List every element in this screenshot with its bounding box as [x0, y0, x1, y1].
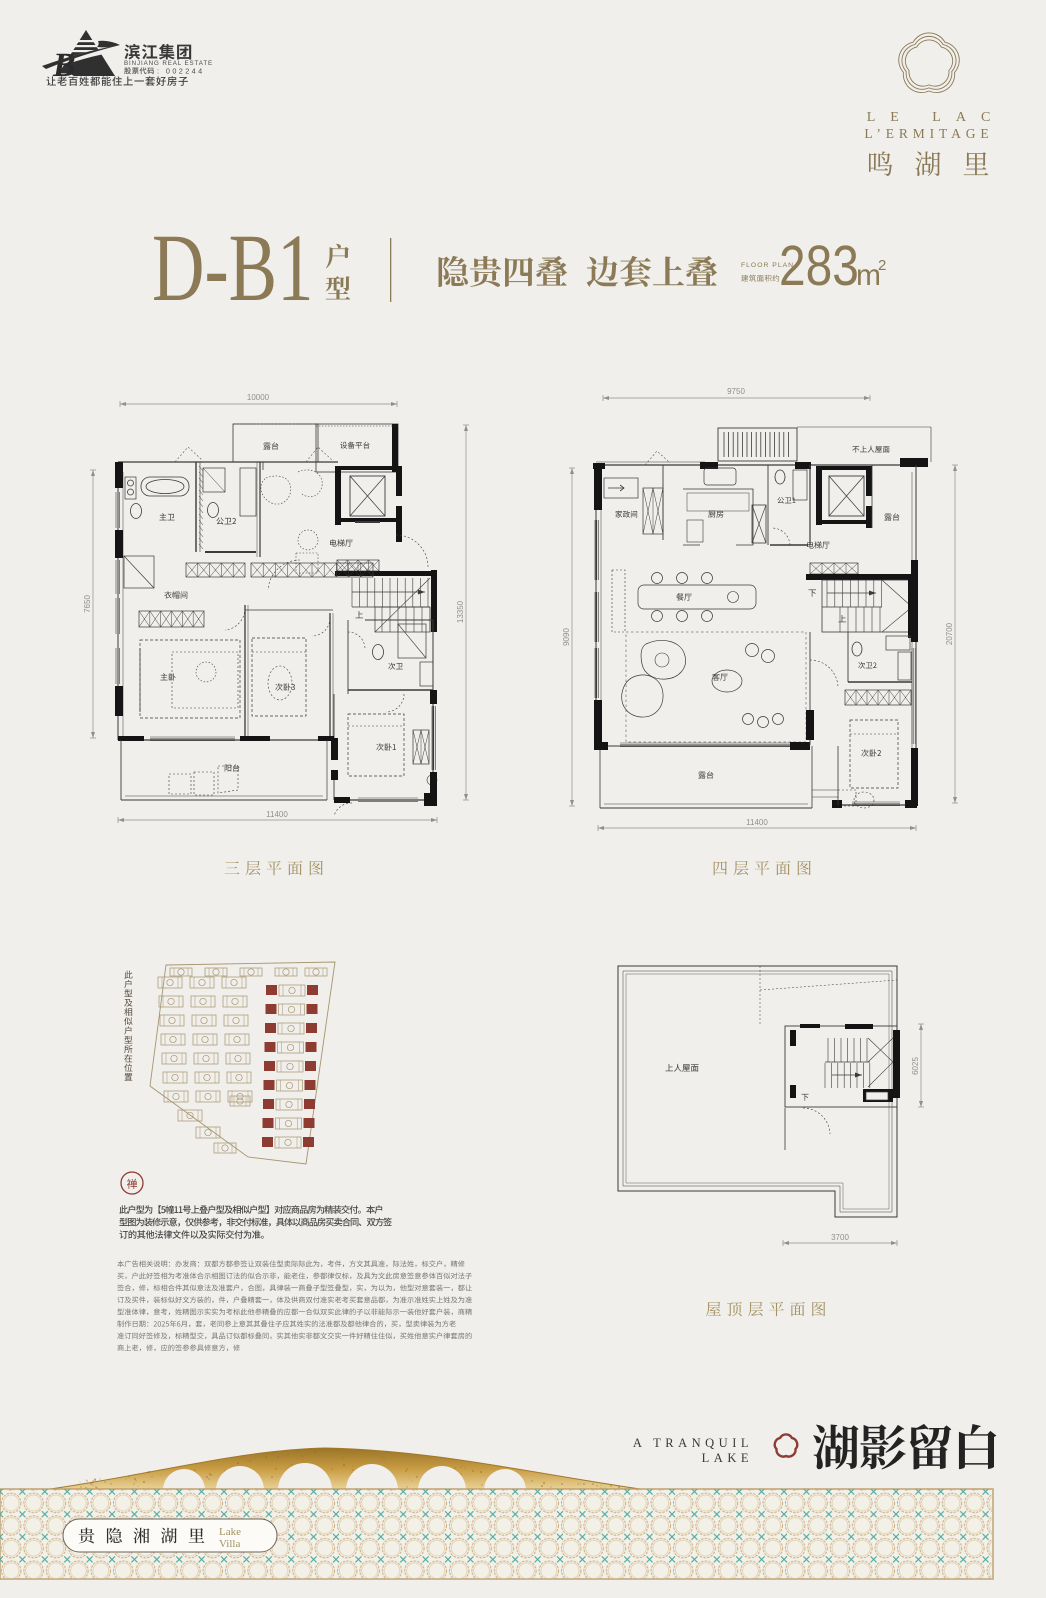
svg-text:: 002244: : 002244	[157, 67, 205, 76]
svg-text:LAKE: LAKE	[702, 1451, 753, 1465]
svg-text:A TRANQUIL: A TRANQUIL	[633, 1436, 753, 1450]
svg-text:LE LAC: LE LAC	[867, 110, 1006, 125]
svg-text:11400: 11400	[266, 810, 288, 819]
svg-text:2: 2	[878, 257, 886, 274]
svg-text:L’ERMITAGE: L’ERMITAGE	[864, 126, 993, 141]
svg-text:10000: 10000	[247, 393, 270, 402]
svg-text:283: 283	[779, 234, 859, 298]
svg-text:9090: 9090	[562, 628, 571, 646]
svg-text:Villa: Villa	[219, 1538, 240, 1550]
svg-text:11400: 11400	[746, 818, 768, 827]
svg-text:6025: 6025	[911, 1057, 920, 1075]
svg-text:D-B1: D-B1	[152, 215, 313, 321]
svg-text:9750: 9750	[727, 387, 745, 396]
svg-text:13350: 13350	[456, 600, 465, 623]
svg-text:7650: 7650	[83, 595, 92, 613]
svg-text:Lake: Lake	[219, 1526, 241, 1538]
svg-text:20700: 20700	[945, 622, 954, 645]
svg-text:3700: 3700	[831, 1233, 849, 1242]
